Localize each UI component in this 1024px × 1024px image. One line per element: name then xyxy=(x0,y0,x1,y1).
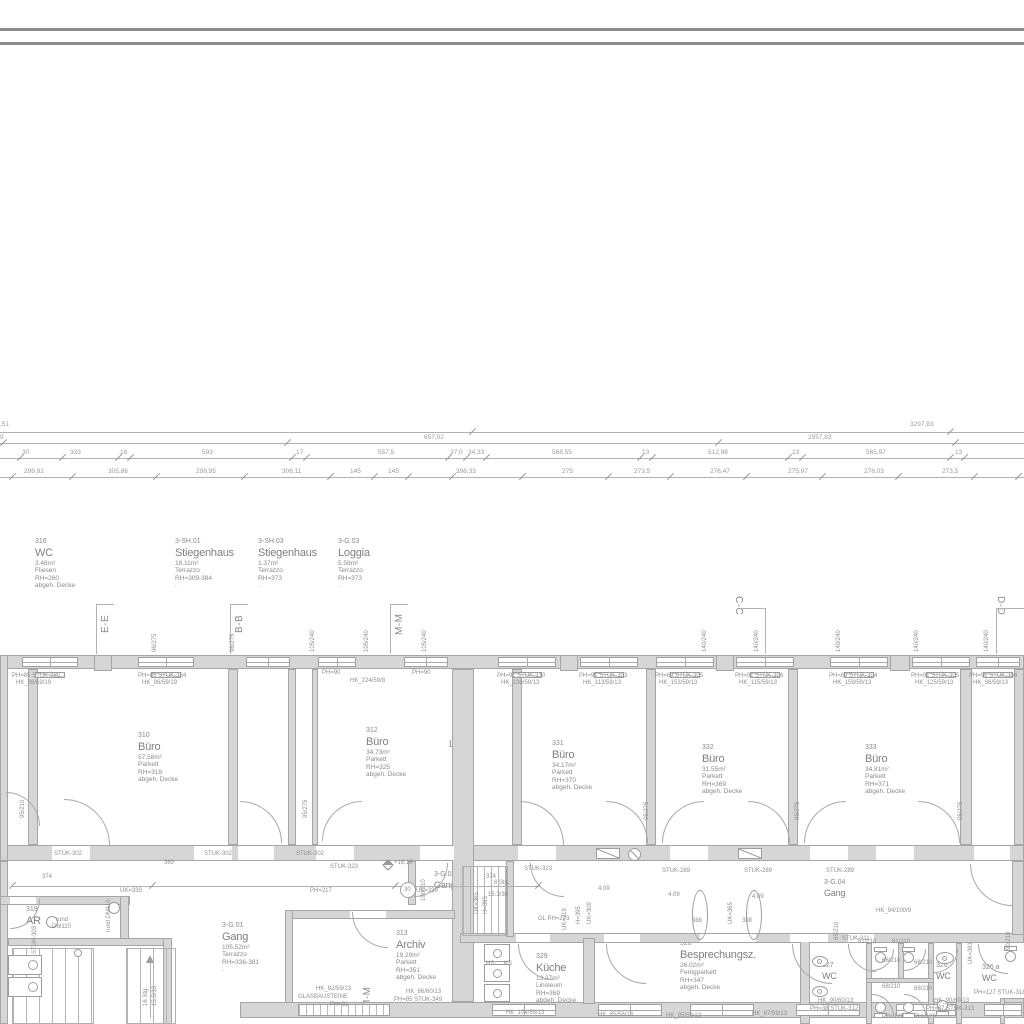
room-floor: Parkett xyxy=(552,769,592,776)
door-swing xyxy=(606,801,648,843)
shaft-symbol xyxy=(596,848,620,859)
annotation: 95/275 xyxy=(958,802,964,820)
door-swing xyxy=(322,801,362,841)
door-swing xyxy=(520,801,564,845)
room-ceiling: abgeh. Decke xyxy=(366,771,406,778)
room-ceiling: . xyxy=(222,966,259,973)
door-swing xyxy=(662,801,704,843)
room-name: Büro xyxy=(366,736,406,748)
room-area: 26.02m² xyxy=(680,962,756,969)
wall xyxy=(0,845,1024,861)
room-height: RH=325 xyxy=(366,764,406,771)
room-ceiling: abgeh. Decke xyxy=(702,788,742,795)
level-marker-icon xyxy=(382,859,393,870)
room-area: 34.73m² xyxy=(366,749,406,756)
annotation: STUK-323 xyxy=(524,866,552,872)
room-label-310: 310 Büro 57.58m² Parkett RH=318 abgeh. D… xyxy=(138,732,178,783)
leader-line xyxy=(12,886,540,887)
door-opening xyxy=(700,934,756,942)
annotation: DM110 xyxy=(52,924,71,930)
dimension-label: 276,03 xyxy=(864,468,884,475)
annotation: PH=127 STUK-318 xyxy=(974,990,1024,996)
door-swing xyxy=(918,801,960,843)
annotation: 68/210 xyxy=(882,984,900,990)
door-swing xyxy=(970,864,1012,906)
dimension-label: 17 xyxy=(296,449,303,456)
room-label-3-g04: 3-G.04 Gang xyxy=(824,879,845,899)
annotation: HK_104/59/13 xyxy=(506,1010,544,1016)
leader-line xyxy=(390,604,408,605)
burner-icon xyxy=(493,949,502,958)
window xyxy=(138,657,194,667)
dimension-label: 145 xyxy=(388,468,399,475)
window xyxy=(912,657,970,667)
dimension-label: 275 xyxy=(562,468,573,475)
door-swing xyxy=(240,801,282,843)
dimension-line xyxy=(0,458,1024,459)
wall xyxy=(1014,669,1024,845)
annotation: 95/275 xyxy=(303,800,309,818)
wall xyxy=(560,655,578,671)
wall xyxy=(288,669,296,845)
appliance-icon xyxy=(484,984,510,1002)
room-height: RH=336-381 xyxy=(222,959,259,966)
drawing-border-line xyxy=(0,42,1024,45)
window xyxy=(498,657,556,667)
annotation: STUK-289 xyxy=(826,868,854,874)
door-swing xyxy=(64,799,110,845)
annotation: PH=91 STUK-303 xyxy=(579,673,627,679)
fixture-knob-icon xyxy=(28,982,38,992)
door-opening xyxy=(516,934,550,942)
annotation: GL PH=273 xyxy=(538,916,569,922)
room-number: 312 xyxy=(366,727,406,735)
room-height: RH=260 xyxy=(35,575,75,582)
room-name: Stiegenhaus xyxy=(258,547,317,559)
wall xyxy=(94,655,112,671)
appliance-icon xyxy=(484,944,510,962)
room-floor: Parkett xyxy=(865,773,905,780)
room-name: Loggia xyxy=(338,547,370,559)
annotation: 369 xyxy=(164,860,174,866)
annotation: 105/240 xyxy=(422,630,428,652)
room-floor: Terrazzo xyxy=(222,951,259,958)
wall xyxy=(1012,861,1024,935)
leader-line xyxy=(96,604,97,654)
annotation: HK_90/60/13 xyxy=(818,998,853,1004)
annotation: HK_136/59/13 xyxy=(501,680,539,686)
annotation: 6 Stg. xyxy=(494,880,510,886)
door-swing xyxy=(606,944,646,984)
annotation: HK_90/60/13 xyxy=(934,998,969,1004)
door-opening xyxy=(810,846,848,860)
room-ceiling: abgeh. Decke xyxy=(138,776,178,783)
room-floor: Fertigparkett xyxy=(680,969,756,976)
annotation: 16 Stg. xyxy=(143,987,149,1006)
dimension-label: 299,92 xyxy=(24,468,44,475)
annotation: HS xyxy=(486,961,494,967)
dimension-label: 3297,83 xyxy=(910,421,934,428)
wall xyxy=(890,655,910,671)
wall xyxy=(312,669,318,845)
room-area: 34.81m² xyxy=(865,766,905,773)
section-marker-e: E-E xyxy=(100,615,111,633)
room-height: RH=370 xyxy=(552,777,592,784)
room-area: 1.37m² xyxy=(258,560,317,567)
annotation: STUK-303 xyxy=(32,926,38,954)
section-marker-b: B-B xyxy=(234,615,245,633)
leader-line xyxy=(390,604,391,654)
burner-icon xyxy=(493,989,502,998)
annotation: HK_85/58/13 xyxy=(598,1012,633,1018)
dimension-line xyxy=(0,443,1024,444)
annotation: HK_82/59/13 xyxy=(316,986,351,992)
room-height: RH=369 xyxy=(702,781,742,788)
column-icon xyxy=(74,949,82,957)
room-height: RH=371 xyxy=(865,781,905,788)
annotation: 4.09 xyxy=(752,894,764,900)
floor-plan-canvas: 316 WC 3.48m² Fliesen RH=260 abgeh. Deck… xyxy=(0,0,1024,1024)
room-name: Besprechungsz. xyxy=(680,949,756,961)
annotation: PH=87 STUK-313 xyxy=(926,1006,974,1012)
room-area: 57.58m² xyxy=(138,754,178,761)
room-number: 3-SH.03 xyxy=(258,538,317,546)
arch-opening xyxy=(692,890,708,940)
dimension-label: 305,86 xyxy=(108,468,128,475)
sink-drain-icon xyxy=(942,956,947,961)
annotation: UK=339 xyxy=(120,888,142,894)
door-swing xyxy=(352,912,388,948)
room-name: WC xyxy=(982,973,1000,983)
room-number: 310 xyxy=(138,732,178,740)
annotation: HK_87/59/13 xyxy=(752,1011,787,1017)
annotation: 68/210 xyxy=(914,986,932,992)
door-opening xyxy=(604,934,640,942)
dimension-label: 2557,83 xyxy=(808,434,832,441)
wall xyxy=(228,669,238,845)
annotation: HK_113/59/13 xyxy=(583,680,621,686)
room-height: RH=369 xyxy=(536,990,576,997)
leader-line xyxy=(96,604,114,605)
dimension-label: 276,47 xyxy=(710,468,730,475)
sink-drain-icon xyxy=(817,989,822,994)
dimension-label: 512,98 xyxy=(708,449,728,456)
room-label-333: 333 Büro 34.81m² Parkett RH=371 abgeh. D… xyxy=(865,744,905,795)
annotation: STUK-289 xyxy=(662,868,690,874)
annotation: 4.09 xyxy=(598,886,610,892)
door-opening xyxy=(876,846,914,860)
annotation: 81/210 xyxy=(858,939,876,945)
annotation: 30 xyxy=(404,887,411,893)
annotation: 140/240 xyxy=(702,630,708,652)
annotation: 90/210 xyxy=(1006,932,1012,950)
annotation: PH=89 STUK-304 xyxy=(829,673,877,679)
leader-line xyxy=(765,608,766,654)
annotation: 81/210 xyxy=(892,939,910,945)
window xyxy=(976,657,1020,667)
annotation: 140/240 xyxy=(754,630,760,652)
annotation: 4.09 xyxy=(668,892,680,898)
sink-icon xyxy=(812,956,828,967)
annotation: 100/210 xyxy=(421,879,427,901)
annotation: PH=217 xyxy=(310,888,332,894)
annotation: STUK-302 xyxy=(54,851,82,857)
room-number: 313 xyxy=(396,930,436,938)
annotation: +16,16 xyxy=(394,860,413,866)
annotation: HK_86/60/13 xyxy=(406,989,441,995)
room-area: 3.48m² xyxy=(35,560,75,567)
annotation: 96/275 xyxy=(152,634,158,652)
room-label-316: 316 WC 3.48m² Fliesen RH=260 abgeh. Deck… xyxy=(35,538,75,589)
annotation: PH=129 xyxy=(882,1014,904,1020)
room-area: 105.52m² xyxy=(222,944,259,951)
annotation: GLASBAUSTEINE xyxy=(298,994,348,1000)
window xyxy=(984,1004,1022,1016)
dimension-label: ,51 xyxy=(0,421,9,428)
wall xyxy=(583,938,595,1004)
room-name: Büro xyxy=(702,753,742,765)
leader-line xyxy=(996,608,997,654)
annotation: PH=90 xyxy=(412,670,431,676)
window xyxy=(246,657,290,667)
dimension-label: 37,0 xyxy=(450,449,463,456)
annotation: PH=91 STUK-305 xyxy=(911,673,959,679)
room-floor: Parkett xyxy=(366,756,406,763)
room-ceiling: . xyxy=(175,582,234,589)
dimension-label: 396,33 xyxy=(456,468,476,475)
annotation: 140/240 xyxy=(914,630,920,652)
annotation: 95/210 xyxy=(20,800,26,818)
window xyxy=(22,657,78,667)
room-label-3-sh01: 3-SH.01 Stiegenhaus 18.11m² Terrazzo RH=… xyxy=(175,538,234,589)
dimension-label: 34,33 xyxy=(468,449,484,456)
room-floor: Parkett xyxy=(702,773,742,780)
annotation: HK_96/59/13 xyxy=(973,680,1008,686)
annotation: HK_86/59/19 xyxy=(16,680,51,686)
annotation: HK_125/59/13 xyxy=(915,680,953,686)
room-area: 18.11m² xyxy=(175,560,234,567)
room-label-3-sh03: 3-SH.03 Stiegenhaus 1.37m² Terrazzo RH=3… xyxy=(258,538,317,589)
room-ceiling: abgeh. Decke xyxy=(552,784,592,791)
annotation: PH=91 STUK-310 xyxy=(497,673,545,679)
sink-icon xyxy=(936,952,954,964)
room-floor: Parkett xyxy=(396,959,436,966)
annotation: PH=89 STUK-305 xyxy=(655,673,703,679)
annotation: 140/240 xyxy=(836,630,842,652)
annotation: PH=90 xyxy=(322,670,341,676)
room-floor: Parkett xyxy=(138,761,178,768)
wall xyxy=(716,655,734,671)
annotation: PH=96 STUK-304 xyxy=(969,673,1017,679)
room-height: RH=347 xyxy=(680,977,756,984)
annotation: H=395 xyxy=(576,906,582,924)
annotation: 105/240 xyxy=(364,630,370,652)
section-marker-m: M-M xyxy=(394,614,405,636)
leader-line xyxy=(230,604,248,605)
door-swing xyxy=(748,801,790,843)
room-area: 31.55m² xyxy=(702,766,742,773)
annotation: 388 xyxy=(742,918,752,924)
stair-treads xyxy=(126,948,176,1024)
fixture-knob-icon xyxy=(28,960,38,970)
annotation: rund xyxy=(56,917,68,923)
room-name: Büro xyxy=(865,753,905,765)
door-swing xyxy=(804,801,846,843)
room-ceiling: abgeh. Decke xyxy=(865,788,905,795)
room-name: Gang xyxy=(222,931,259,943)
section-marker-c: C-C xyxy=(733,596,744,615)
dimension-label: 557,5 xyxy=(378,449,394,456)
room-height: RH=373 xyxy=(338,575,370,582)
room-area: 5.58m² xyxy=(338,560,370,567)
toilet-icon xyxy=(1005,951,1016,962)
window xyxy=(830,657,888,667)
room-label-312: 312 Büro 34.73m² Parkett RH=325 abgeh. D… xyxy=(366,727,406,778)
room-name: Archiv xyxy=(396,939,436,951)
room-height: RH=351 xyxy=(396,967,436,974)
room-height: RH=309-384 xyxy=(175,575,234,582)
dimension-label: 333 xyxy=(70,449,81,456)
shaft-symbol xyxy=(738,848,762,859)
annotation: PH=85 STUK-380 xyxy=(12,673,60,679)
door-opening xyxy=(518,846,556,860)
room-area: 19.29m² xyxy=(396,952,436,959)
dimension-label: 657,02 xyxy=(424,434,444,441)
annotation: KS xyxy=(504,961,512,967)
dimension-label: 299,95 xyxy=(196,468,216,475)
dimension-label: 9 xyxy=(0,434,4,441)
dimension-label: 565,97 xyxy=(866,449,886,456)
dimension-label: 13 xyxy=(792,449,799,456)
leader-line xyxy=(740,608,766,609)
room-number: 316 xyxy=(35,538,75,546)
window xyxy=(580,657,638,667)
door-opening xyxy=(420,846,454,860)
annotation: 388 xyxy=(692,918,702,924)
room-floor: Fliesen xyxy=(35,567,75,574)
leader-line xyxy=(996,608,1024,609)
annotation: HK_153/59/13 xyxy=(659,680,697,686)
annotation: 95/275 xyxy=(795,802,801,820)
annotation: UK=381 xyxy=(968,942,974,964)
room-floor: Terrazzo xyxy=(258,567,317,574)
annotation: HK_85/59/13 xyxy=(666,1013,701,1019)
annotation: 374 xyxy=(42,874,52,880)
room-height: RH=373 xyxy=(258,575,317,582)
annotation: STUK-289 xyxy=(744,868,772,874)
dimension-label: 273,5 xyxy=(634,468,650,475)
annotation: PH=85 STUK-384 xyxy=(138,673,186,679)
annotation: UK=365 xyxy=(474,892,480,914)
sink-drain-icon xyxy=(817,959,822,964)
dimension-label: 593 xyxy=(202,449,213,456)
window xyxy=(318,657,356,667)
annotation: 140/240 xyxy=(984,630,990,652)
room-name: Büro xyxy=(552,749,592,761)
burner-icon xyxy=(493,969,502,978)
room-name: Stiegenhaus xyxy=(175,547,234,559)
door-opening xyxy=(670,846,708,860)
window xyxy=(404,657,448,667)
annotation: HK_94/100/9 xyxy=(876,908,911,914)
dimension-label: 145 xyxy=(350,468,361,475)
room-floor: Terrazzo xyxy=(175,567,234,574)
room-ceiling: abgeh. Decke xyxy=(680,984,756,991)
room-label-3-g03: 3-G.03 Loggia 5.58m² Terrazzo RH=373 . xyxy=(338,538,370,589)
dimension-label: 275,97 xyxy=(788,468,808,475)
annotation: STUK-302 xyxy=(204,851,232,857)
dimension-label: 306,11 xyxy=(282,468,301,475)
annotation: 68/210 xyxy=(914,960,932,966)
dimension-label: 568,55 xyxy=(552,449,572,456)
fixture-icon xyxy=(8,977,42,997)
door-opening xyxy=(974,846,1010,860)
room-label-332: 332 Büro 31.55m² Parkett RH=369 abgeh. D… xyxy=(702,744,742,795)
room-label-328: 328 Besprechungsz. 26.02m² Fertigparkett… xyxy=(680,940,756,991)
room-name: Gang xyxy=(824,888,845,898)
door-opening xyxy=(790,934,828,942)
wall xyxy=(452,669,474,1002)
annotation: PH=38 STUK-312 xyxy=(810,1006,858,1012)
annotation: 105/240 xyxy=(310,630,316,652)
annotation: HK_115/59/13 xyxy=(739,680,777,686)
room-number: 333 xyxy=(865,744,905,752)
room-label-3-g01: 3-G.01 Gang 105.52m² Terrazzo RH=336-381… xyxy=(222,922,259,973)
annotation: 15.3/30 xyxy=(488,892,508,898)
window xyxy=(736,657,794,667)
dimension-line xyxy=(0,432,1024,433)
room-name: Büro xyxy=(138,741,178,753)
room-ceiling: abgeh. Decke xyxy=(396,974,436,981)
annotation: UK=365 xyxy=(728,902,734,924)
annotation: PH=91 xyxy=(330,1002,349,1008)
room-number: 332 xyxy=(702,744,742,752)
annotation: PH=85 STUK-349 xyxy=(394,997,442,1003)
window xyxy=(656,657,714,667)
room-number: 3-G.04 xyxy=(824,879,845,887)
room-floor: Linoleum xyxy=(536,982,576,989)
toilet-icon xyxy=(903,952,914,963)
wall xyxy=(0,655,8,861)
annotation: STUK-302 xyxy=(296,851,324,857)
toilet-icon xyxy=(875,1002,886,1013)
room-label-331: 331 Büro 34.17m² Parkett RH=370 abgeh. D… xyxy=(552,740,592,791)
annotation: 96/275 xyxy=(230,634,236,652)
wall xyxy=(285,910,293,1004)
annotation: HK_159/59/13 xyxy=(833,680,871,686)
annotation: 95/275 xyxy=(644,802,650,820)
door-swing xyxy=(518,944,554,980)
room-ceiling: . xyxy=(258,582,317,589)
annotation: 15.5/33 xyxy=(152,986,158,1006)
annotation: PH=129 xyxy=(914,1014,936,1020)
room-label-313: 313 Archiv 19.29m² Parkett RH=351 abgeh.… xyxy=(396,930,436,981)
wall xyxy=(0,861,8,1024)
dimension-label: 273,5 xyxy=(942,468,958,475)
annotation: HK_224/59/8 xyxy=(350,678,385,684)
room-area: 34.17m² xyxy=(552,762,592,769)
dimension-label: 13 xyxy=(955,449,962,456)
vent-symbol xyxy=(628,848,641,861)
annotation: H=395 xyxy=(483,896,489,914)
annotation: HK_96/59/19 xyxy=(142,680,177,686)
annotation: 65/210 xyxy=(834,922,840,940)
annotation: UK=309 xyxy=(587,902,593,924)
wall xyxy=(866,978,934,983)
annotation: STUK-323 xyxy=(330,864,358,870)
annotation: rund DM110 xyxy=(106,899,112,932)
fixture-icon xyxy=(8,955,42,975)
